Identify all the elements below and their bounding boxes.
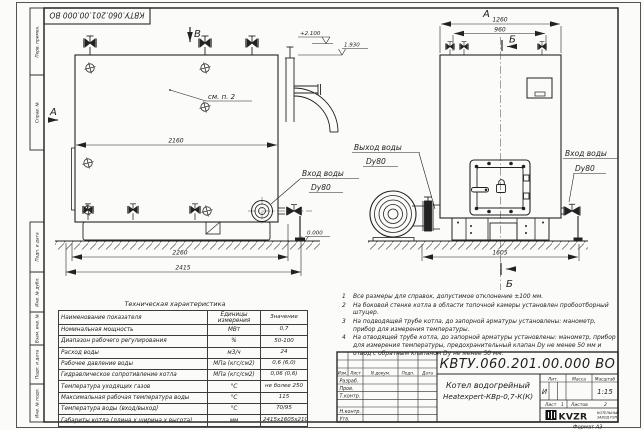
- svg-text:Лист: Лист: [544, 402, 557, 408]
- svg-text:см. п. 2: см. п. 2: [208, 93, 236, 101]
- note-item: 3На подводящей трубе котла, до запорной …: [340, 319, 616, 334]
- svg-text:N докум.: N докум.: [371, 370, 390, 375]
- col-header-name: Наименование показателя: [59, 311, 208, 325]
- lifting-marks: [83, 63, 213, 217]
- elev-mid: 1.930: [344, 43, 360, 49]
- svg-text:Лист: Лист: [349, 370, 361, 375]
- svg-text:Т.контр.: Т.контр.: [340, 394, 361, 400]
- table-row: Максимальная рабочая температура воды°С1…: [59, 392, 308, 403]
- section-a-side-label: А: [49, 107, 57, 118]
- table-row: Габариты котла (длина х ширина х высота)…: [59, 415, 308, 426]
- svg-text:Подп.: Подп.: [402, 370, 415, 375]
- dim-2260: 2260: [172, 250, 187, 257]
- drawing-sheet: КВТУ.060.201.00.000 ВО Перв. примен. Спр…: [0, 0, 644, 430]
- front-inlet-valve: [561, 204, 583, 241]
- logo-subtext-2: ЗАВОД РЭП: [597, 415, 618, 419]
- scale-value: 1:15: [597, 388, 613, 396]
- door-handle: [472, 188, 489, 193]
- furnace-door: [470, 160, 530, 215]
- section-v-label: В: [194, 29, 201, 40]
- section-b-top-label: Б: [509, 35, 516, 46]
- door-hinges: [524, 175, 530, 199]
- manufacturer-logo: KVZR КОТЕЛЬНЫЙ ЗАВОД РЭП: [546, 410, 620, 423]
- svg-text:Масса: Масса: [572, 376, 586, 382]
- dim-1605: 1605: [492, 250, 507, 257]
- product-name-1: Котел водогрейный: [446, 381, 530, 390]
- svg-text:Пров.: Пров.: [340, 386, 354, 392]
- table-row: Расход водым3/ч24: [59, 347, 308, 358]
- inlet-side-size: Dy80: [311, 183, 331, 192]
- svg-text:1: 1: [561, 402, 564, 408]
- dim-2415: 2415: [175, 265, 190, 272]
- svg-text:Подп. и дата: Подп. и дата: [35, 350, 41, 380]
- col-header-units: Единицы измерения: [208, 311, 261, 325]
- dim-2160: 2160: [168, 138, 183, 145]
- table-row: Гидравлическое сопротивление котлаМПа (к…: [59, 370, 308, 381]
- product-name-2: Heatexpert-КВр-0,7-К(К): [443, 392, 533, 401]
- svg-text:Инв. № дубл.: Инв. № дубл.: [35, 277, 41, 306]
- svg-text:Масштаб: Масштаб: [595, 376, 616, 382]
- tech-table-header: Наименование показателя Единицы измерени…: [59, 311, 308, 325]
- litera-value: И: [542, 388, 548, 396]
- svg-text:Взам. инв. №: Взам. инв. №: [35, 313, 41, 343]
- table-row: Рабочее давление водыМПа (кгс/см2)0,6 (6…: [59, 358, 308, 369]
- drawing-notes: 1Все размеры для справок, допустимое отк…: [340, 294, 616, 359]
- side-view-right-valve: [278, 205, 305, 241]
- svg-text:Справ. №: Справ. №: [35, 102, 41, 123]
- format-note: Формат А3: [573, 424, 603, 430]
- front-view-top-valves: [446, 42, 547, 55]
- outlet-size: Dy80: [366, 157, 386, 166]
- svg-text:Н.контр.: Н.контр.: [340, 409, 361, 415]
- draft-fan: [370, 191, 440, 241]
- front-view-port-labels: Выход воды Dy80 Вход воды Dy80: [352, 143, 617, 209]
- svg-text:Листов: Листов: [570, 402, 588, 408]
- col-header-value: Значение: [261, 311, 308, 325]
- logo-subtext-1: КОТЕЛЬНЫЙ: [597, 410, 619, 415]
- svg-text:Утв.: Утв.: [340, 417, 350, 423]
- section-b-bottom-label: Б: [506, 279, 513, 290]
- dim-960: 960: [494, 27, 506, 34]
- dim-1260: 1260: [492, 17, 507, 24]
- rotated-doc-stamp: КВТУ.060.201.00.000 ВО: [44, 8, 150, 24]
- svg-text:Инв. № подл.: Инв. № подл.: [35, 388, 41, 418]
- svg-text:Лит.: Лит.: [547, 376, 558, 382]
- logo-text: KVZR: [559, 411, 588, 422]
- table-row: Номинальная мощностьМВт0,7: [59, 325, 308, 336]
- padlock-icon: [497, 180, 506, 193]
- note-item: 1Все размеры для справок, допустимое отк…: [340, 294, 616, 302]
- side-view-port-labels: Вход воды Dy80: [271, 169, 359, 204]
- boiler-side-view: [55, 55, 320, 250]
- table-row: Температура уходящих газов°Сне более 250: [59, 381, 308, 392]
- table-row: Температура воды (вход/выход)°С70/95: [59, 404, 308, 415]
- technical-characteristics-table: Техническая характеристика Наименование …: [58, 300, 292, 427]
- svg-text:Перв. примен.: Перв. примен.: [35, 25, 41, 57]
- svg-text:2: 2: [604, 402, 607, 408]
- side-view-dimensions: 2160 2260 2415: [66, 138, 301, 277]
- table-row: Диапазон рабочего регулирования%50-100: [59, 336, 308, 347]
- svg-text:Разраб.: Разраб.: [340, 378, 359, 384]
- note-item: 2На боковой стенке котла в области топоч…: [340, 303, 616, 318]
- elev-top: +2.100: [300, 31, 321, 37]
- inlet-front-label: Вход воды: [565, 149, 607, 158]
- section-a-top-label: А: [482, 9, 490, 20]
- note-item: 4На отводящей трубе котла, до запорной а…: [340, 335, 616, 358]
- inlet-front-size: Dy80: [575, 164, 595, 173]
- fan-outlet-valve: [423, 197, 440, 231]
- stamp-text: КВТУ.060.201.00.000 ВО: [49, 11, 144, 20]
- side-view-valves: [83, 36, 258, 220]
- boiler-front-view: [368, 37, 588, 290]
- flue-duct: [285, 47, 338, 132]
- svg-text:Изм.: Изм.: [338, 370, 348, 375]
- elevation-marks: +2.100 1.930 0.000: [298, 31, 368, 241]
- elev-zero: 0.000: [307, 231, 323, 237]
- see-note-ref: см. п. 2: [169, 89, 252, 101]
- outlet-label: Выход воды: [354, 143, 402, 152]
- svg-text:Подп. и дата: Подп. и дата: [35, 232, 41, 262]
- tech-table-title: Техническая характеристика: [58, 300, 292, 308]
- inlet-side-label: Вход воды: [302, 169, 344, 178]
- svg-text:Дата: Дата: [421, 370, 433, 375]
